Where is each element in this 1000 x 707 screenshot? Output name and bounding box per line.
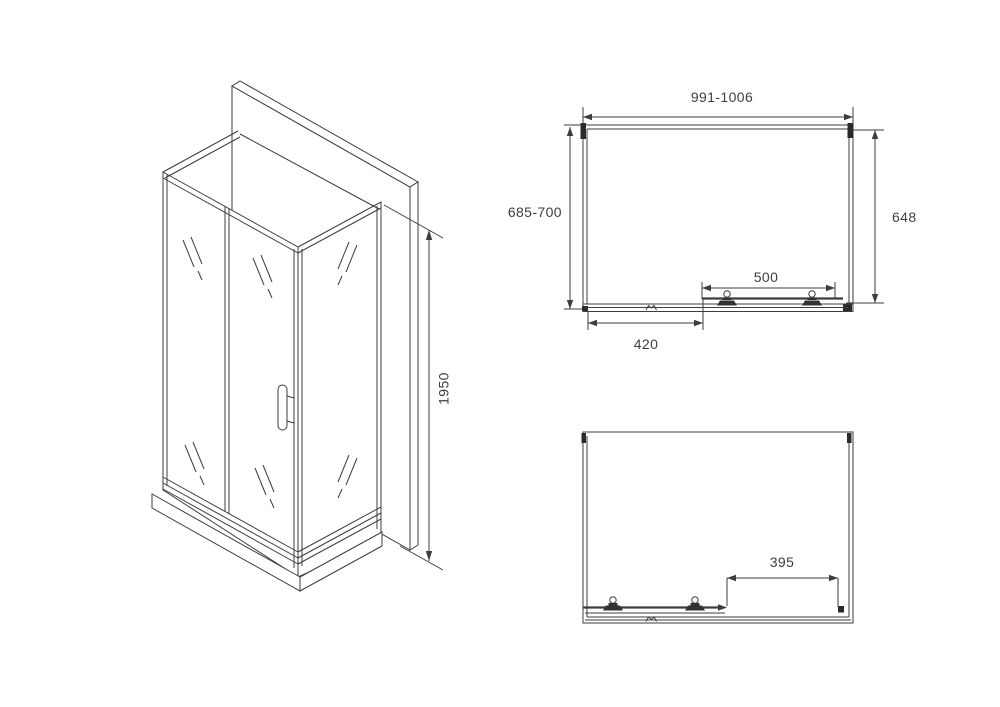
wall-profile-icon (581, 123, 854, 312)
isometric-view (152, 81, 443, 591)
dimension-label-opening-right: 395 (752, 555, 812, 570)
side-panel-right (298, 202, 381, 577)
bottom-plan-view (582, 432, 854, 623)
dimension-label-depth-range: 685-700 (478, 205, 562, 220)
roller-icon (685, 597, 705, 611)
door-rail (583, 604, 727, 621)
wall-profile-icon (582, 433, 852, 613)
roller-icon (603, 597, 623, 611)
opening-left-dimension (588, 312, 703, 330)
top-plan-view (564, 107, 884, 330)
width-dimension (583, 107, 853, 124)
dimension-label-width-range: 991-1006 (662, 90, 782, 105)
plan-outline (583, 125, 853, 312)
dimension-label-opening-left: 420 (616, 337, 676, 352)
plan-outline (583, 432, 853, 623)
dimension-label-door-width: 500 (736, 270, 796, 285)
dimension-label-side-panel: 648 (892, 210, 952, 225)
side-panel-dimension (846, 130, 884, 303)
depth-dimension (564, 125, 582, 309)
drawing-canvas: 991-1006 685-700 648 500 420 395 1950 (0, 0, 1000, 707)
opening-right-dimension (727, 575, 838, 607)
dimension-label-height: 1950 (437, 359, 452, 419)
technical-drawing-svg (0, 0, 1000, 707)
